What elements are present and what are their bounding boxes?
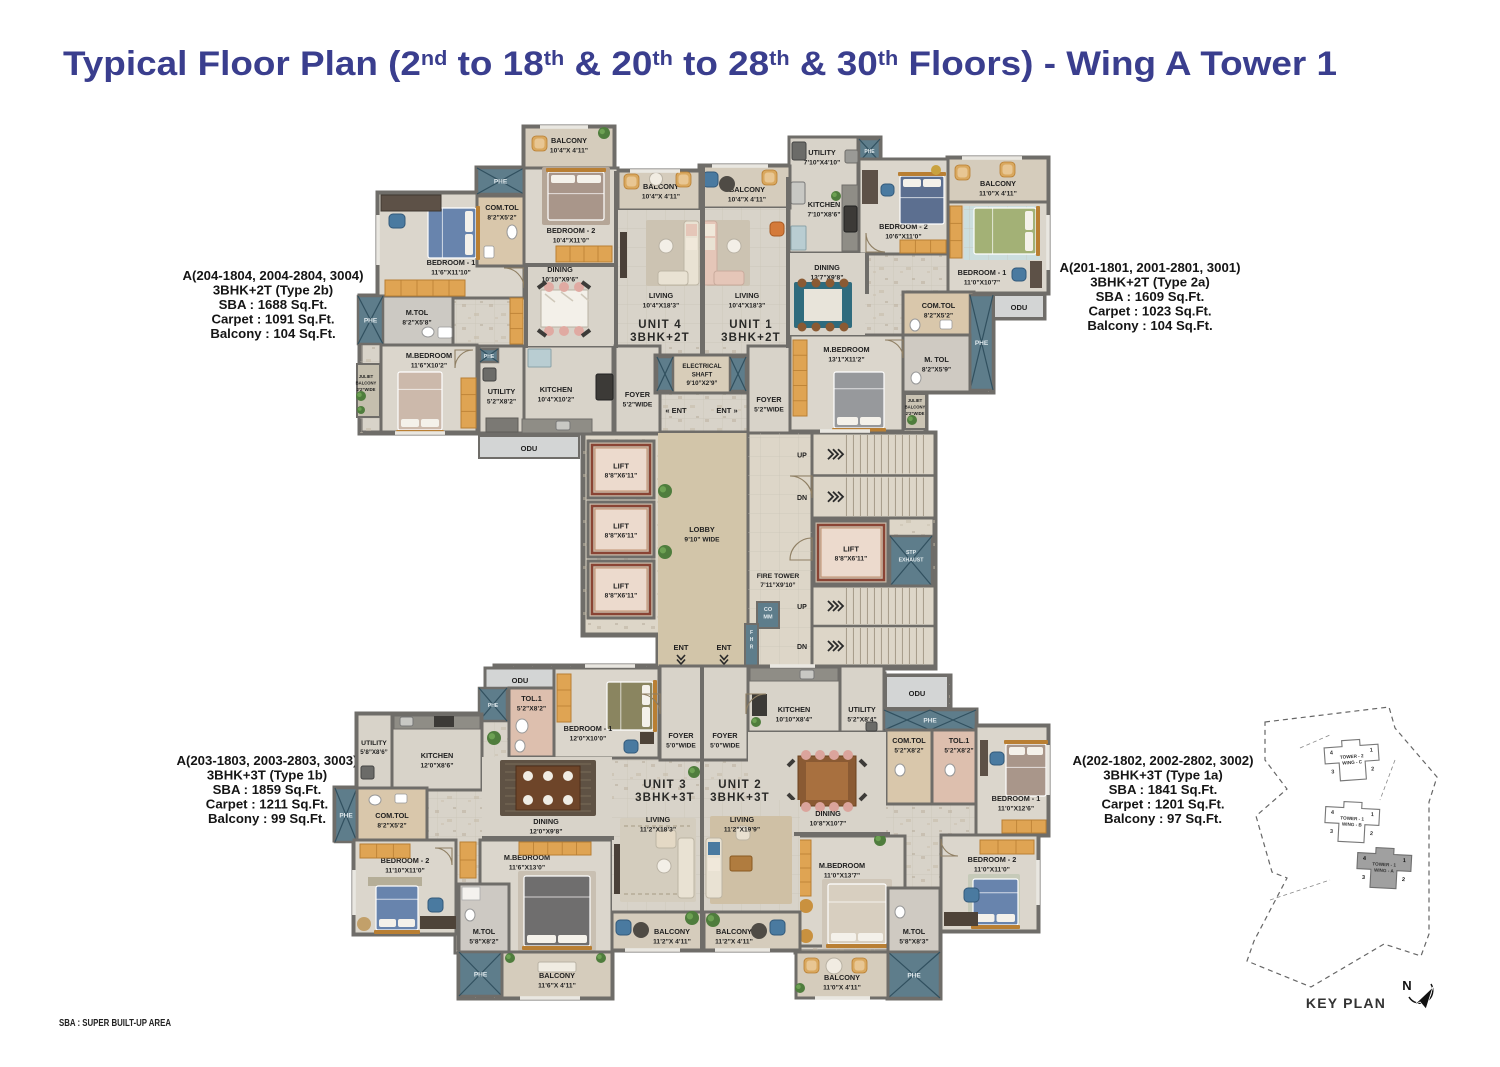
svg-text:PHE: PHE (494, 179, 508, 186)
svg-text:3BHK+2T (Type 2a): 3BHK+2T (Type 2a) (1090, 275, 1210, 290)
svg-text:JULIET: JULIET (359, 374, 374, 379)
svg-text:BEDROOM - 1: BEDROOM - 1 (564, 724, 613, 733)
svg-text:BEDROOM - 1: BEDROOM - 1 (958, 268, 1007, 277)
svg-text:7’11”X9’10”: 7’11”X9’10” (760, 582, 795, 589)
svg-text:SBA : 1609 Sq.Ft.: SBA : 1609 Sq.Ft. (1096, 289, 1205, 304)
svg-text:Balcony : 97 Sq.Ft.: Balcony : 97 Sq.Ft. (1104, 811, 1222, 826)
svg-text:PHE: PHE (474, 972, 488, 979)
svg-text:Balcony : 104 Sq.Ft.: Balcony : 104 Sq.Ft. (210, 326, 335, 341)
svg-text:3: 3 (1331, 769, 1334, 775)
svg-text:11’2”X19’9”: 11’2”X19’9” (724, 827, 760, 834)
svg-text:KEY PLAN: KEY PLAN (1306, 995, 1386, 1011)
svg-text:A(204-1804, 2004-2804, 3004): A(204-1804, 2004-2804, 3004) (182, 268, 363, 283)
svg-text:UNIT 4: UNIT 4 (638, 319, 682, 331)
svg-text:11’2”X 4’11”: 11’2”X 4’11” (715, 939, 753, 946)
svg-text:5’2”X8’2”: 5’2”X8’2” (944, 748, 973, 755)
svg-text:3: 3 (1330, 829, 1333, 835)
svg-text:PHE: PHE (864, 149, 875, 155)
svg-text:7’10”X4’10”: 7’10”X4’10” (804, 160, 841, 167)
svg-text:BALCONY: BALCONY (356, 380, 377, 385)
svg-text:2: 2 (1371, 766, 1374, 772)
svg-text:BALCONY: BALCONY (654, 927, 690, 936)
svg-text:ENT: ENT (717, 643, 732, 652)
svg-text:SBA : 1841 Sq.Ft.: SBA : 1841 Sq.Ft. (1109, 782, 1218, 797)
svg-text:11’0”X 4’11”: 11’0”X 4’11” (823, 985, 861, 992)
svg-text:FOYER: FOYER (756, 395, 782, 404)
svg-text:KITCHEN: KITCHEN (421, 751, 453, 760)
svg-text:Carpet : 1211 Sq.Ft.: Carpet : 1211 Sq.Ft. (206, 797, 328, 812)
svg-text:DINING: DINING (533, 817, 559, 826)
svg-text:LOBBY: LOBBY (689, 525, 715, 534)
svg-text:SHAFT: SHAFT (692, 371, 713, 378)
svg-text:11’6”X11’10”: 11’6”X11’10” (431, 270, 471, 277)
svg-text:11’10”X11’0”: 11’10”X11’0” (385, 868, 425, 875)
svg-text:8’2”X5’2”: 8’2”X5’2” (487, 215, 516, 222)
svg-text:FOYER: FOYER (668, 731, 694, 740)
svg-text:11’0”X10’7”: 11’0”X10’7” (964, 280, 1000, 287)
svg-text:11’6”X13’0”: 11’6”X13’0” (509, 865, 545, 872)
svg-text:BEDROOM - 1: BEDROOM - 1 (427, 258, 476, 267)
svg-text:Balcony : 99 Sq.Ft.: Balcony : 99 Sq.Ft. (208, 811, 326, 826)
svg-text:2’2”WIDE: 2’2”WIDE (906, 411, 925, 416)
svg-text:8’8”X6’11”: 8’8”X6’11” (605, 533, 638, 540)
svg-text:TOL.1: TOL.1 (521, 694, 542, 703)
svg-text:FOYER: FOYER (712, 731, 738, 740)
svg-text:10’4”X 4’11”: 10’4”X 4’11” (642, 194, 680, 201)
svg-text:BEDROOM - 2: BEDROOM - 2 (968, 855, 1017, 864)
svg-text:11’0”X12’6”: 11’0”X12’6” (998, 806, 1034, 813)
svg-text:11’6”X10’2”: 11’6”X10’2” (411, 363, 447, 370)
svg-text:MM: MM (763, 615, 773, 621)
svg-text:SBA : 1859 Sq.Ft.: SBA : 1859 Sq.Ft. (213, 782, 322, 797)
svg-text:8’8”X6’11”: 8’8”X6’11” (605, 593, 638, 600)
svg-text:11’0”X11’0”: 11’0”X11’0” (974, 867, 1010, 874)
svg-text:TOL.1: TOL.1 (949, 736, 970, 745)
svg-text:8’8”X6’11”: 8’8”X6’11” (835, 556, 868, 563)
svg-text:10’10”X8’4”: 10’10”X8’4” (776, 717, 813, 724)
svg-text:LIVING: LIVING (730, 815, 755, 824)
svg-text:ODU: ODU (512, 676, 529, 685)
svg-text:5’2”X8’2”: 5’2”X8’2” (517, 706, 546, 713)
svg-text:LIFT: LIFT (613, 462, 629, 471)
svg-text:DN: DN (797, 644, 807, 651)
svg-text:ODU: ODU (521, 444, 538, 453)
svg-text:Carpet : 1023 Sq.Ft.: Carpet : 1023 Sq.Ft. (1088, 304, 1211, 319)
svg-text:12’0”X9’8”: 12’0”X9’8” (530, 829, 563, 836)
svg-text:1: 1 (1403, 858, 1406, 864)
svg-text:UTILITY: UTILITY (848, 705, 876, 714)
svg-text:BALCONY: BALCONY (980, 179, 1016, 188)
svg-text:10’4”X 4’11”: 10’4”X 4’11” (550, 148, 588, 155)
svg-text:UNIT 2: UNIT 2 (718, 779, 762, 791)
svg-text:FOYER: FOYER (625, 390, 651, 399)
svg-text:5’8”X8’2”: 5’8”X8’2” (469, 939, 498, 946)
svg-text:BEDROOM - 2: BEDROOM - 2 (547, 226, 596, 235)
svg-text:PHE: PHE (907, 973, 921, 980)
svg-text:F: F (750, 630, 753, 636)
svg-text:PHE: PHE (339, 813, 353, 820)
svg-text:3BHK+3T (Type 1a): 3BHK+3T (Type 1a) (1103, 768, 1223, 783)
svg-text:7’10”X8’6”: 7’10”X8’6” (808, 212, 841, 219)
svg-text:5’8”X8’6”: 5’8”X8’6” (360, 749, 388, 756)
svg-text:M.TOL: M.TOL (473, 927, 496, 936)
svg-text:SBA : 1688 Sq.Ft.: SBA : 1688 Sq.Ft. (219, 297, 328, 312)
svg-text:3BHK+3T: 3BHK+3T (635, 792, 695, 804)
svg-text:M.BEDROOM: M.BEDROOM (819, 861, 865, 870)
svg-text:DINING: DINING (815, 809, 841, 818)
svg-text:STP: STP (906, 550, 917, 556)
svg-text:FIRE TOWER: FIRE TOWER (757, 573, 800, 580)
svg-text:5’2”WIDE: 5’2”WIDE (623, 402, 653, 409)
svg-text:M. TOL: M. TOL (924, 355, 949, 364)
svg-text:KITCHEN: KITCHEN (808, 200, 840, 209)
svg-text:8’2”X5’9”: 8’2”X5’9” (922, 367, 951, 374)
svg-text:10’8”X10’7”: 10’8”X10’7” (810, 821, 847, 828)
svg-text:N: N (1402, 978, 1411, 993)
svg-text:10’4”X18’3”: 10’4”X18’3” (729, 303, 766, 310)
svg-text:ELECTRICAL: ELECTRICAL (682, 363, 721, 370)
svg-text:UTILITY: UTILITY (808, 148, 836, 157)
svg-text:10’4”X18’3”: 10’4”X18’3” (643, 303, 680, 310)
svg-text:9’10”X2’9”: 9’10”X2’9” (687, 380, 718, 387)
svg-text:BEDROOM - 1: BEDROOM - 1 (992, 794, 1041, 803)
svg-text:3: 3 (1362, 875, 1365, 881)
svg-text:3BHK+3T (Type 1b): 3BHK+3T (Type 1b) (207, 768, 327, 783)
svg-text:ENT: ENT (674, 643, 689, 652)
svg-text:COM.TOL: COM.TOL (485, 203, 519, 212)
svg-text:PHE: PHE (975, 340, 989, 347)
svg-text:11’0”X 4’11”: 11’0”X 4’11” (979, 191, 1017, 198)
svg-text:UTILITY: UTILITY (361, 740, 387, 747)
svg-text:LIVING: LIVING (735, 291, 760, 300)
svg-text:WING - A: WING - A (1374, 867, 1395, 873)
svg-text:5’0”WIDE: 5’0”WIDE (710, 743, 740, 750)
svg-text:8’2”X5’2”: 8’2”X5’2” (924, 313, 953, 320)
svg-text:DN: DN (797, 495, 807, 502)
svg-text:UP: UP (797, 604, 807, 611)
svg-text:3BHK+2T (Type 2b): 3BHK+2T (Type 2b) (213, 283, 333, 298)
svg-text:3BHK+2T: 3BHK+2T (630, 332, 690, 344)
svg-text:KITCHEN: KITCHEN (540, 385, 572, 394)
svg-text:M.TOL: M.TOL (903, 927, 926, 936)
svg-text:10’6”X11’0”: 10’6”X11’0” (885, 234, 921, 241)
svg-text:A(203-1803, 2003-2803, 3003): A(203-1803, 2003-2803, 3003) (176, 753, 357, 768)
svg-text:5’0”WIDE: 5’0”WIDE (666, 743, 696, 750)
svg-text:10’4”X11’0”: 10’4”X11’0” (553, 238, 589, 245)
svg-text:11’0”X13’7”: 11’0”X13’7” (824, 873, 860, 880)
svg-text:ODU: ODU (909, 689, 926, 698)
svg-text:12’0”X8’6”: 12’0”X8’6” (421, 763, 454, 770)
svg-text:UTILITY: UTILITY (488, 387, 516, 396)
svg-text:SBA : SUPER BUILT-UP AREA: SBA : SUPER BUILT-UP AREA (59, 1017, 171, 1029)
svg-text:ODU: ODU (1011, 303, 1028, 312)
svg-text:2: 2 (1370, 831, 1373, 837)
svg-text:1: 1 (1370, 748, 1373, 754)
svg-text:13’1”X11’2”: 13’1”X11’2” (828, 357, 864, 364)
svg-text:CO: CO (764, 607, 773, 613)
svg-text:H: H (750, 637, 754, 643)
svg-text:BALCONY: BALCONY (551, 136, 587, 145)
svg-text:Carpet : 1201 Sq.Ft.: Carpet : 1201 Sq.Ft. (1101, 797, 1224, 812)
svg-text:8’2”X5’2”: 8’2”X5’2” (377, 823, 406, 830)
svg-text:11’2”X18’3”: 11’2”X18’3” (640, 827, 676, 834)
svg-text:11’6”X 4’11”: 11’6”X 4’11” (538, 983, 576, 990)
svg-text:COM.TOL: COM.TOL (892, 736, 926, 745)
svg-text:UNIT 3: UNIT 3 (643, 779, 687, 791)
svg-text:M.TOL: M.TOL (406, 308, 429, 317)
svg-text:A(201-1801, 2001-2801, 3001): A(201-1801, 2001-2801, 3001) (1059, 260, 1240, 275)
svg-text:3BHK+2T: 3BHK+2T (721, 332, 781, 344)
svg-text:BALCONY: BALCONY (716, 927, 752, 936)
svg-text:JULIET: JULIET (908, 398, 923, 403)
svg-text:2: 2 (1402, 877, 1405, 883)
svg-text:PHE: PHE (364, 318, 378, 325)
svg-text:PHE: PHE (923, 718, 937, 725)
svg-text:A(202-1802, 2002-2802, 3002): A(202-1802, 2002-2802, 3002) (1072, 753, 1253, 768)
svg-text:Typical Floor Plan (2nd to 18t: Typical Floor Plan (2nd to 18th & 20th t… (63, 45, 1337, 83)
svg-text:5’2”X8’2”: 5’2”X8’2” (487, 399, 516, 406)
svg-text:LIFT: LIFT (613, 522, 629, 531)
svg-text:EXHAUST: EXHAUST (899, 557, 925, 563)
svg-text:LIVING: LIVING (646, 815, 671, 824)
svg-text:3BHK+3T: 3BHK+3T (710, 792, 770, 804)
svg-text:M.BEDROOM: M.BEDROOM (406, 351, 452, 360)
svg-text:10’4”X10’2”: 10’4”X10’2” (538, 397, 575, 404)
svg-text:BALCONY: BALCONY (824, 973, 860, 982)
svg-text:Carpet : 1091 Sq.Ft.: Carpet : 1091 Sq.Ft. (211, 312, 334, 327)
svg-text:12’0”X10’0”: 12’0”X10’0” (570, 736, 607, 743)
svg-text:COM.TOL: COM.TOL (375, 811, 409, 820)
svg-text:UNIT 1: UNIT 1 (729, 319, 773, 331)
svg-text:11’2”X 4’11”: 11’2”X 4’11” (653, 939, 691, 946)
svg-text:M.BEDROOM: M.BEDROOM (823, 345, 869, 354)
svg-text:ENT »: ENT » (716, 406, 737, 415)
svg-text:PHE: PHE (488, 703, 499, 709)
svg-text:DINING: DINING (814, 263, 840, 272)
svg-text:COM.TOL: COM.TOL (922, 301, 956, 310)
svg-text:5’2”X8’2”: 5’2”X8’2” (894, 748, 923, 755)
svg-text:PHE: PHE (484, 354, 495, 360)
svg-text:LIFT: LIFT (613, 582, 629, 591)
svg-text:Balcony : 104 Sq.Ft.: Balcony : 104 Sq.Ft. (1087, 318, 1212, 333)
svg-text:10’4”X 4’11”: 10’4”X 4’11” (728, 197, 766, 204)
svg-text:2’2”WIDE: 2’2”WIDE (357, 387, 376, 392)
svg-text:5’2”WIDE: 5’2”WIDE (754, 407, 784, 414)
svg-text:9’10” WIDE: 9’10” WIDE (684, 537, 720, 544)
svg-text:LIFT: LIFT (843, 545, 859, 554)
svg-text:BALCONY: BALCONY (905, 404, 926, 409)
svg-text:1: 1 (1371, 812, 1374, 818)
svg-text:UP: UP (797, 452, 807, 459)
svg-text:R: R (750, 644, 754, 650)
svg-text:« ENT: « ENT (665, 406, 687, 415)
svg-text:5’8”X8’3”: 5’8”X8’3” (899, 939, 928, 946)
svg-text:LIVING: LIVING (649, 291, 674, 300)
svg-text:8’2”X5’8”: 8’2”X5’8” (402, 320, 431, 327)
svg-text:8’8”X6’11”: 8’8”X6’11” (605, 473, 638, 480)
svg-text:KITCHEN: KITCHEN (778, 705, 810, 714)
